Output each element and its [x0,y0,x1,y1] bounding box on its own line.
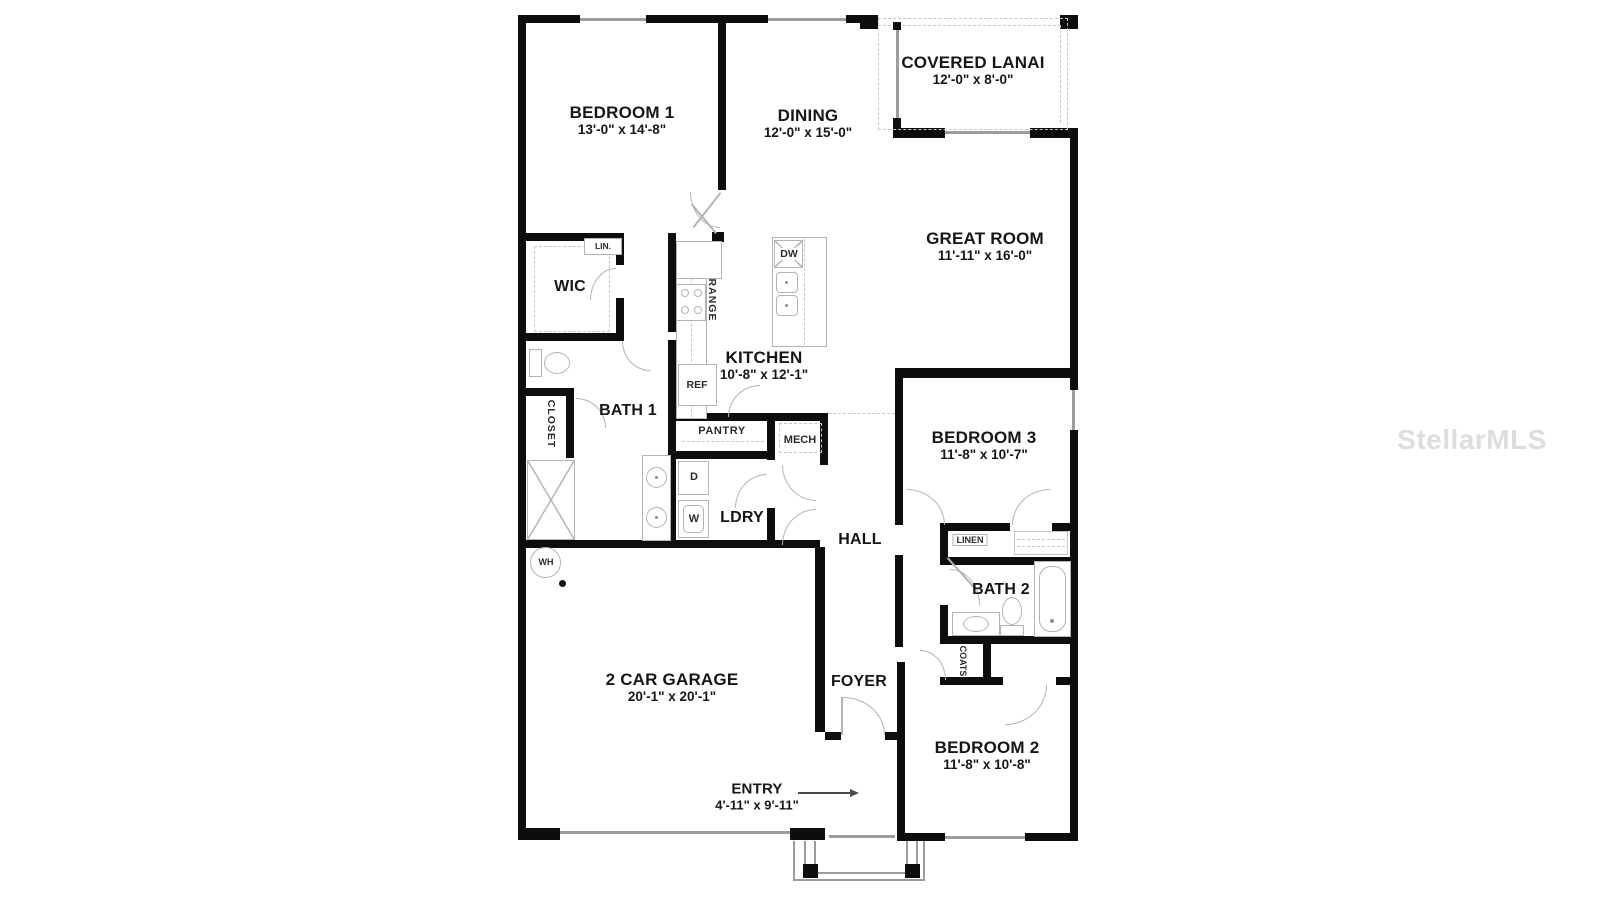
room-dims: 10'-8" x 12'-1" [720,367,808,382]
wall [1052,523,1078,531]
pantry-label: PANTRY [698,425,746,437]
room-name: BATH 1 [599,402,657,420]
wall [518,828,560,840]
island-dash [804,239,805,345]
drain-dot [785,281,788,284]
drain-dot [1050,619,1054,623]
room-label-bedroom2: BEDROOM 2 11'-8" x 10'-8" [935,738,1040,772]
burner-icon [681,306,689,314]
wall [1025,833,1078,841]
wall [940,636,1078,644]
toilet-tank [1000,625,1024,636]
sliding-door [945,131,1030,134]
drain-dot [785,304,788,307]
room-dims: 13'-0" x 14'-8" [570,122,675,137]
room-dims: 4'-11" x 9'-11" [715,798,799,813]
room-label-garage: 2 CAR GARAGE 20'-1" x 20'-1" [606,670,739,704]
room-name: BATH 2 [972,581,1030,599]
burner-icon [694,306,702,314]
door-arc [1012,489,1050,525]
garage-door [560,831,790,834]
wall [893,118,901,128]
door-leaf [841,697,843,735]
wall [895,368,903,525]
porch-post [803,864,818,878]
wall [566,388,574,458]
room-name: 2 CAR GARAGE [606,670,739,689]
room-label-bath2: BATH 2 [972,581,1030,599]
front-door-line [829,835,895,838]
wall [897,662,905,841]
drain-dot [655,516,658,519]
closet-rod-dash [1017,546,1065,547]
toilet-fixture [1002,597,1022,625]
coats-label: COATS [958,646,968,677]
wall [718,22,726,190]
door-arc [622,341,650,371]
door-arc [1005,685,1047,725]
porch-line [793,841,795,881]
room-dims: 12'-0" x 15'-0" [764,125,852,140]
room-name: GREAT ROOM [926,229,1044,248]
floor-drain [559,580,566,587]
burner-icon [681,289,689,297]
room-dims: 20'-1" x 20'-1" [606,689,739,704]
wall [815,547,825,732]
burner-icon [694,289,702,297]
wall [518,15,580,23]
room-dims: 11'-8" x 10'-7" [932,447,1037,462]
closet-label: CLOSET [545,400,557,449]
room-dims: 11'-8" x 10'-8" [935,757,1040,772]
room-name: FOYER [831,673,887,691]
wall [893,22,901,30]
dryer-label: D [690,471,698,483]
floor-plan: BEDROOM 1 13'-0" x 14'-8" DINING 12'-0" … [0,0,1600,900]
room-dims: 12'-0" x 8'-0" [901,72,1044,87]
wall [767,508,775,547]
room-label-bedroom3: BEDROOM 3 11'-8" x 10'-7" [932,428,1037,462]
porch-line [923,841,925,881]
room-label-wic: WIC [554,278,586,296]
door-arc [728,385,760,417]
room-dims: 11'-11" x 16'-0" [926,248,1044,263]
wall [885,732,905,740]
porch-line [810,872,912,874]
pantry-shelf-dash [682,441,764,442]
wall [526,333,616,341]
shower-fixture [527,460,575,540]
wall [790,828,825,840]
wall [898,368,1078,378]
room-label-kitchen: KITCHEN 10'-8" x 12'-1" [720,348,808,382]
sink-fixture [963,616,989,632]
wall [526,540,820,548]
lanai-wall [896,22,899,128]
wall [1070,128,1078,841]
kitchen-counter-corner [676,241,722,279]
toilet-tank [529,349,542,377]
room-label-dining: DINING 12'-0" x 15'-0" [764,106,852,140]
door-arc [907,489,945,525]
window [945,836,1025,839]
wall [676,451,767,459]
room-label-great-room: GREAT ROOM 11'-11" x 16'-0" [926,229,1044,263]
range-fixture [676,284,706,321]
dw-label: DW [779,248,799,260]
mech-label: MECH [784,434,816,446]
door-arc [782,509,816,545]
lin-label: LIN. [595,241,611,251]
linen-label: LINEN [953,534,988,546]
drain-dot [655,476,658,479]
door-arc [843,697,885,735]
door-arc [920,650,946,680]
window [1072,390,1075,430]
toilet-fixture [544,352,570,374]
window [580,18,646,21]
wall [616,298,624,341]
room-name: BEDROOM 3 [932,428,1037,447]
room-label-ldry: LDRY [720,509,764,527]
porch-post [905,864,920,878]
closet-outline [1014,531,1068,555]
room-name: COVERED LANAI [901,53,1044,72]
watermark: StellarMLS [1397,424,1547,456]
wall [518,15,526,840]
room-name: KITCHEN [720,348,808,367]
room-label-bath1: BATH 1 [599,402,657,420]
room-label-bedroom1: BEDROOM 1 13'-0" x 14'-8" [570,103,675,137]
washer-label: W [689,513,699,525]
door-arc [735,474,767,508]
room-name: HALL [838,531,881,549]
ceiling-break-line [828,413,895,414]
room-label-lanai: COVERED LANAI 12'-0" x 8'-0" [901,53,1044,87]
water-heater-label: WH [539,557,554,567]
room-name: BEDROOM 1 [570,103,675,122]
ref-label: REF [687,379,708,391]
room-name: WIC [554,278,586,296]
window [768,18,846,21]
lanai-post [860,15,878,29]
entry-arrow-line [798,792,850,794]
room-name: ENTRY [715,781,799,798]
room-name: BEDROOM 2 [935,738,1040,757]
wall [895,555,903,647]
wall [947,523,1010,531]
wall [940,677,1003,685]
porch-line [793,879,925,881]
room-name: DINING [764,106,852,125]
range-label: RANGE [706,279,718,322]
room-label-foyer: FOYER [831,673,887,691]
room-name: LDRY [720,509,764,527]
door-arc [782,465,816,501]
wall [1056,677,1078,685]
wall [646,15,768,23]
entry-arrow-icon [850,789,859,797]
room-label-hall: HALL [838,531,881,549]
room-label-entry: ENTRY 4'-11" x 9'-11" [715,781,799,812]
wall [825,732,841,740]
wall [668,233,676,332]
closet-rod-dash [1017,539,1065,540]
